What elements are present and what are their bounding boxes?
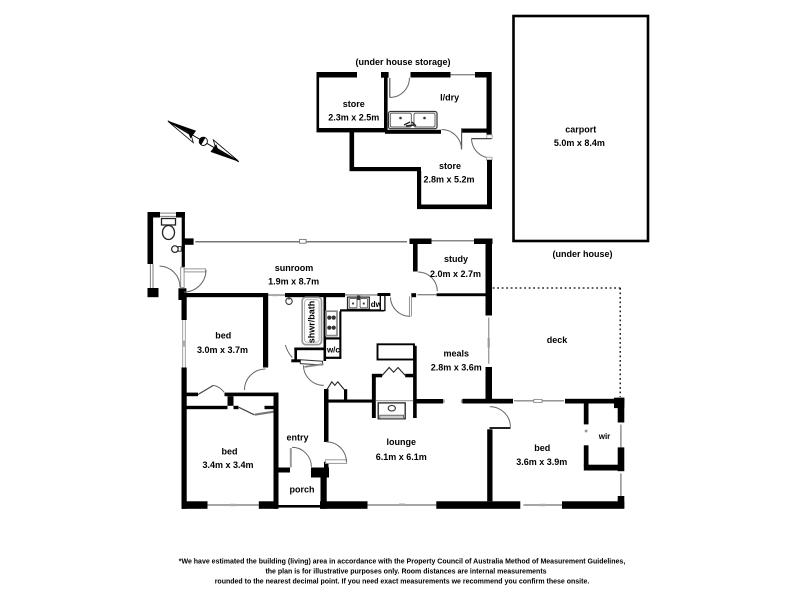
svg-text:1.9m x 8.7m: 1.9m x 8.7m — [268, 277, 319, 287]
svg-text:6.1m x 6.1m: 6.1m x 6.1m — [376, 452, 427, 462]
svg-text:w/c: w/c — [326, 345, 340, 354]
svg-text:bed: bed — [215, 331, 231, 341]
svg-text:deck: deck — [547, 335, 569, 345]
svg-text:carport: carport — [565, 125, 596, 135]
svg-text:meals: meals — [444, 349, 470, 359]
svg-text:2.8m x 3.6m: 2.8m x 3.6m — [431, 363, 482, 373]
svg-text:bed: bed — [221, 447, 237, 457]
svg-text:*We have estimated the buildin: *We have estimated the building (living)… — [179, 558, 626, 565]
svg-text:sunroom: sunroom — [275, 263, 314, 273]
svg-text:porch: porch — [289, 485, 314, 495]
svg-text:bed: bed — [534, 443, 550, 453]
svg-text:lounge: lounge — [387, 437, 417, 447]
svg-text:shwr/bath: shwr/bath — [307, 301, 317, 344]
svg-text:3.0m x 3.7m: 3.0m x 3.7m — [197, 345, 248, 355]
svg-text:study: study — [444, 254, 468, 264]
svg-text:3.6m x 3.9m: 3.6m x 3.9m — [516, 457, 567, 467]
svg-text:l/dry: l/dry — [440, 92, 459, 102]
svg-text:store: store — [343, 99, 365, 109]
svg-text:3.4m x 3.4m: 3.4m x 3.4m — [202, 460, 253, 470]
svg-text:(under house storage): (under house storage) — [355, 57, 450, 67]
svg-text:2.8m x 5.2m: 2.8m x 5.2m — [423, 174, 474, 184]
svg-text:the plan is for illustrative p: the plan is for illustrative purposes on… — [265, 568, 546, 575]
svg-text:(under house): (under house) — [553, 249, 613, 259]
svg-text:wir: wir — [598, 432, 611, 441]
svg-text:5.0m x 8.4m: 5.0m x 8.4m — [554, 138, 605, 148]
svg-text:rounded to the nearest decimal: rounded to the nearest decimal point. If… — [215, 578, 590, 585]
svg-text:2.3m x 2.5m: 2.3m x 2.5m — [328, 113, 379, 123]
svg-text:2.0m x 2.7m: 2.0m x 2.7m — [430, 269, 481, 279]
svg-text:entry: entry — [286, 433, 308, 443]
svg-text:store: store — [439, 161, 461, 171]
